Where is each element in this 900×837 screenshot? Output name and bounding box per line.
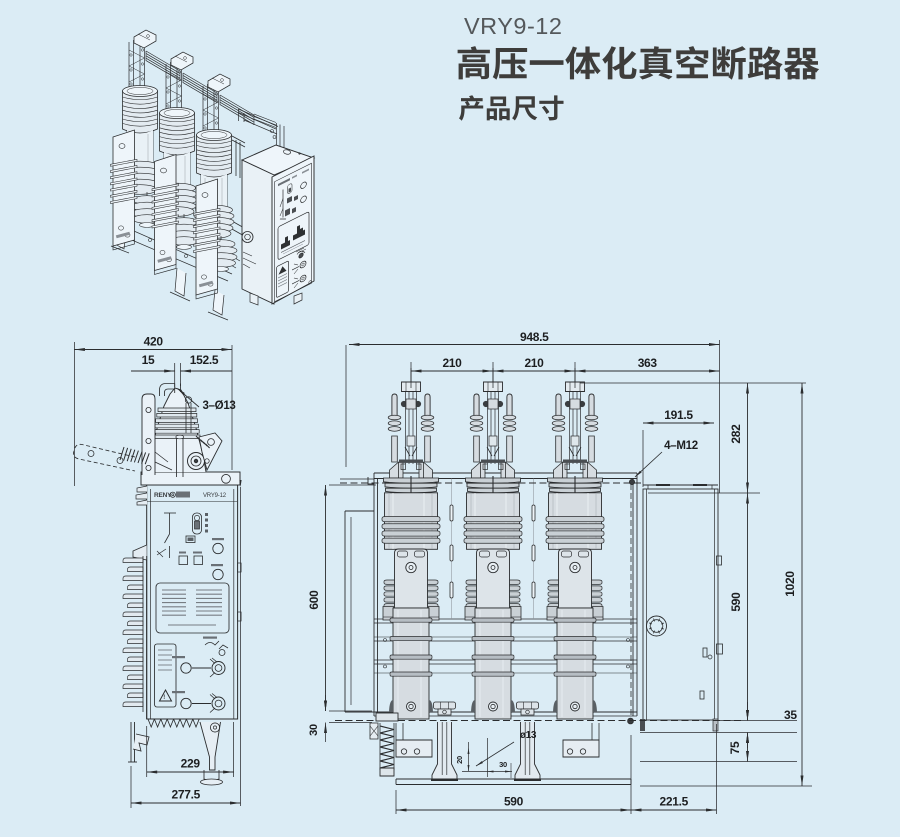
- svg-text:600: 600: [307, 590, 321, 610]
- svg-text:3–Ø13: 3–Ø13: [202, 400, 235, 412]
- svg-text:590: 590: [729, 592, 743, 612]
- svg-text:152.5: 152.5: [190, 353, 219, 367]
- svg-text:4–M12: 4–M12: [664, 440, 698, 452]
- svg-text:30: 30: [308, 724, 320, 736]
- svg-text:15: 15: [142, 353, 155, 367]
- svg-text:VRY9-12: VRY9-12: [203, 493, 227, 499]
- svg-text:229: 229: [181, 757, 201, 771]
- svg-text:590: 590: [504, 795, 524, 809]
- svg-text:210: 210: [442, 356, 462, 370]
- svg-text:221.5: 221.5: [659, 795, 688, 809]
- svg-text:75: 75: [728, 741, 742, 754]
- svg-text:1020: 1020: [783, 571, 797, 597]
- svg-text:191.5: 191.5: [664, 408, 693, 422]
- svg-text:!: !: [163, 695, 165, 701]
- svg-text:35: 35: [784, 708, 797, 722]
- svg-text:948.5: 948.5: [520, 330, 549, 344]
- svg-text:420: 420: [144, 335, 164, 349]
- svg-text:RENY: RENY: [154, 492, 172, 499]
- svg-text:277.5: 277.5: [171, 788, 200, 802]
- svg-text:VRY9-12: VRY9-12: [464, 13, 562, 39]
- svg-text:ø13: ø13: [520, 730, 537, 741]
- svg-text:363: 363: [638, 356, 658, 370]
- svg-text:210: 210: [524, 356, 544, 370]
- svg-text:30: 30: [499, 760, 507, 769]
- svg-text:282: 282: [729, 424, 743, 444]
- svg-text:20: 20: [455, 756, 464, 764]
